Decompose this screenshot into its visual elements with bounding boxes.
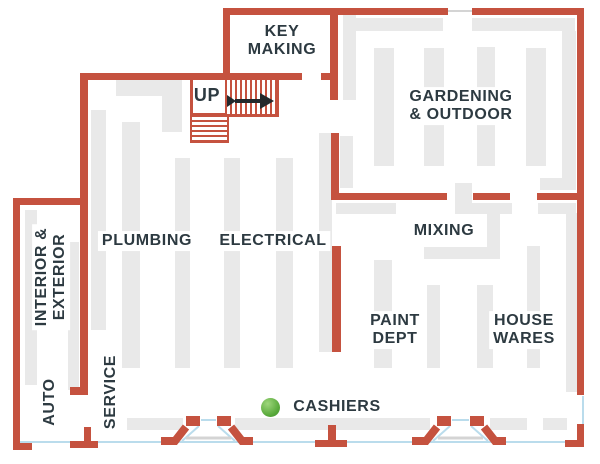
room-label-service: SERVICE: [101, 351, 121, 433]
wall-left-outer: [13, 198, 20, 450]
angled-door-jamb: [412, 427, 437, 441]
door-jamb: [470, 416, 484, 426]
room-label-house-wares: HOUSE WARES: [489, 311, 559, 349]
cashiers-location-dot-icon: [261, 398, 280, 417]
wall-keymaking-left: [223, 8, 230, 80]
wall-center-left-cap: [70, 387, 88, 395]
wall-keymaking-top: [223, 8, 337, 15]
angled-door-jamb: [161, 427, 186, 441]
wall-bottom-left-foot: [13, 443, 32, 450]
wall-gardening-top-right: [472, 8, 584, 15]
room-label-auto: AUTO: [40, 374, 60, 429]
wall-gardening-left-upper: [330, 8, 338, 100]
door-jamb: [186, 416, 200, 426]
wall-left-block-top: [13, 198, 86, 205]
wall-main-top: [83, 73, 302, 80]
room-label-paint-dept: PAINT DEPT: [366, 311, 424, 349]
wall-gardening-bottom-1: [331, 193, 447, 200]
room-label-electrical: ELECTRICAL: [215, 231, 330, 251]
door-jamb: [437, 416, 451, 426]
room-label-mixing: MIXING: [410, 221, 479, 241]
wall-bottom-right-foot: [565, 440, 584, 447]
room-label-line: KEY: [248, 23, 316, 41]
entrance-vestibule-right: [412, 416, 506, 441]
room-label-line: DEPT: [370, 330, 420, 348]
wall-gardening-top-left: [337, 8, 448, 15]
room-label-line: MAKING: [248, 41, 316, 59]
wall-center-jamb-stem: [328, 425, 336, 442]
angled-door-jamb: [484, 427, 506, 441]
room-label-line: PAINT: [370, 312, 420, 330]
wall-center-left: [80, 73, 88, 395]
room-label-line: GARDENING: [409, 88, 512, 106]
wall-gardening-left-lower: [331, 133, 339, 200]
room-label-key-making: KEY MAKING: [244, 22, 320, 60]
room-label-line: INTERIOR &: [33, 228, 51, 326]
room-label-line: EXTERIOR: [51, 228, 69, 326]
room-label-gardening-outdoor: GARDENING & OUTDOOR: [405, 87, 516, 125]
wall-right-upper: [577, 8, 584, 200]
wall-gardening-bottom-3: [537, 193, 584, 200]
wall-right-mid: [577, 200, 584, 395]
wall-paint-partition: [332, 246, 341, 352]
wall-service-jamb-stem: [84, 427, 91, 443]
room-label-line: HOUSE: [493, 312, 555, 330]
angled-door-jamb: [231, 427, 253, 441]
stairs-up-label: UP: [190, 84, 224, 106]
room-label-line: WARES: [493, 330, 555, 348]
floor-plan: KEY MAKING UP GARDENING & OUTDOOR PLUMBI…: [0, 0, 600, 464]
room-label-cashiers: CASHIERS: [289, 397, 384, 417]
room-label-line: & OUTDOOR: [409, 106, 512, 124]
room-label-interior-exterior: INTERIOR & EXTERIOR: [32, 224, 70, 330]
entrance-vestibule-left: [161, 416, 253, 441]
room-label-plumbing: PLUMBING: [98, 231, 196, 251]
wall-gardening-bottom-2: [473, 193, 510, 200]
door-jamb: [217, 416, 231, 426]
